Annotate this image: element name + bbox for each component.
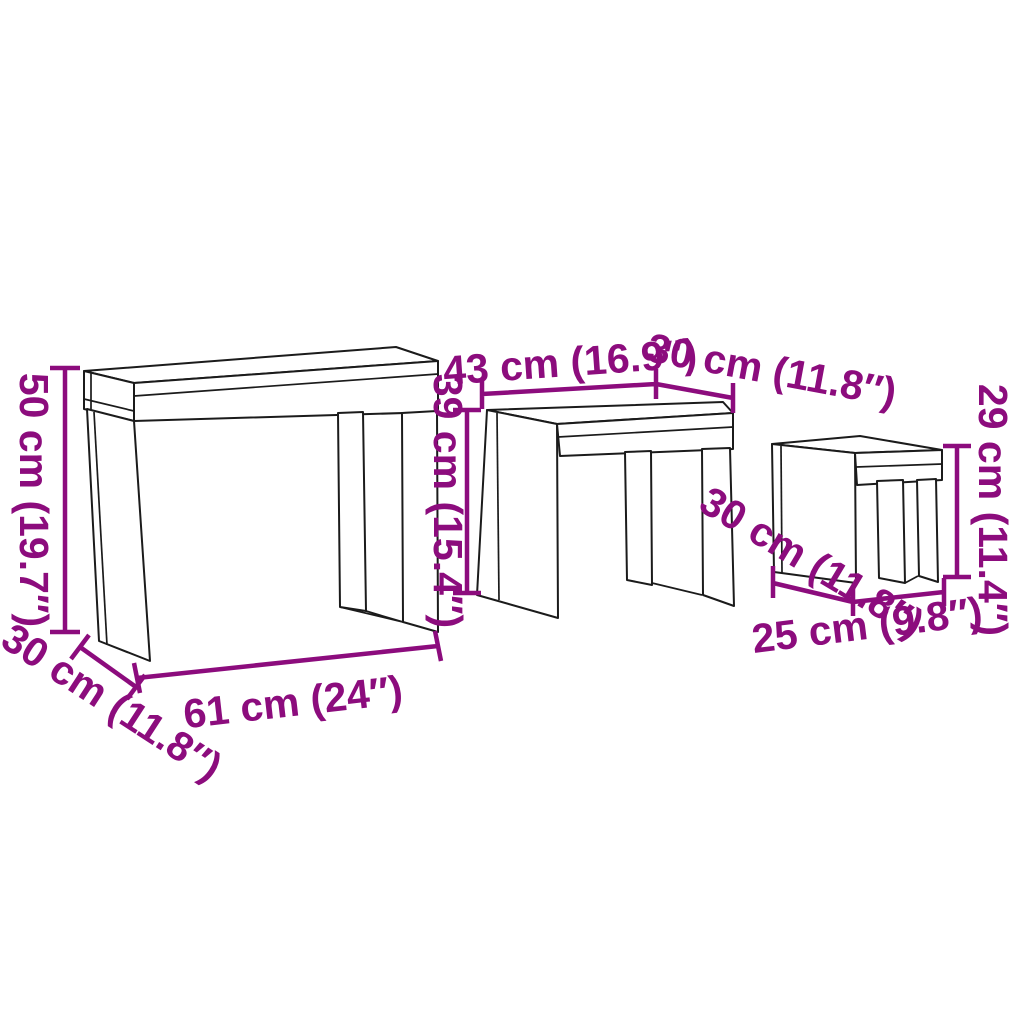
small-table-center-leg-panel xyxy=(877,480,905,583)
small-height-dimension-line xyxy=(943,446,971,577)
product-dimension-diagram: 50 cm (19.7″) 61 cm (24″) 30 cm (11.8″) … xyxy=(0,0,1024,1024)
medium-height-label: 39 cm (15.4″) xyxy=(425,374,471,628)
large-table-drawing xyxy=(84,347,438,661)
small-table-right-leg-panel xyxy=(917,479,938,582)
medium-table-center-leg-foot-edges xyxy=(652,583,702,595)
diagram-canvas: 50 cm (19.7″) 61 cm (24″) 30 cm (11.8″) … xyxy=(0,0,1024,1024)
large-table-center-leg-foot-edges xyxy=(340,607,403,622)
large-table-center-leg-panel xyxy=(338,412,366,611)
medium-depth-label: 30 cm (11.8″) xyxy=(644,324,900,415)
small-table-center-leg-foot-edges xyxy=(905,576,918,583)
medium-table-left-side-panel xyxy=(477,410,558,618)
large-height-label: 50 cm (19.7″) xyxy=(11,373,57,627)
large-width-label: 61 cm (24″) xyxy=(181,667,405,738)
medium-table-center-leg-panel xyxy=(625,451,652,585)
